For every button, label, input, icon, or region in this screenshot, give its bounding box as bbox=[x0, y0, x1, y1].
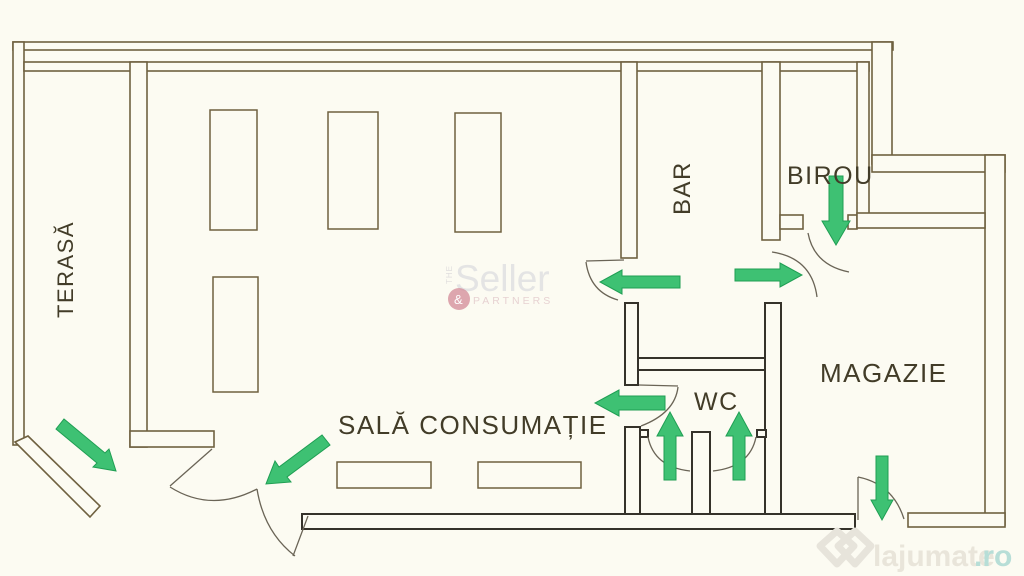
entrance-door-leaf-right bbox=[293, 516, 308, 556]
wc-door-leaf bbox=[639, 385, 678, 386]
arrow-magazie-down bbox=[871, 456, 893, 520]
wall-wc-left-lower bbox=[625, 427, 640, 517]
entrance-door-leaf-left bbox=[170, 449, 212, 486]
seller-name-text: Seller bbox=[455, 258, 550, 299]
label-sala-consumatie: SALĂ CONSUMAȚIE bbox=[338, 410, 608, 440]
arrow-terrace bbox=[56, 419, 116, 471]
arrow-stall-left-up bbox=[657, 412, 683, 480]
lajumate-watermark: lajumate .ro bbox=[820, 531, 1012, 573]
wall-stall-stub-right bbox=[757, 430, 766, 437]
bar-door-leaf bbox=[586, 260, 624, 261]
wall-outer-bottom-right bbox=[908, 513, 1005, 527]
label-magazie: MAGAZIE bbox=[820, 358, 948, 388]
floorplan-scan: TERASĂ BAR BIROU MAGAZIE WC SALĂ CONSUMA… bbox=[0, 0, 1024, 576]
wall-wc-right bbox=[765, 303, 781, 515]
entrance-door-arc-right bbox=[257, 489, 295, 556]
table-rect bbox=[213, 277, 258, 392]
room-walls bbox=[24, 62, 985, 447]
table-rect bbox=[455, 113, 501, 232]
arrow-main-entrance bbox=[266, 435, 330, 484]
wall-outer-left bbox=[13, 42, 24, 445]
wall-hall-left bbox=[130, 62, 147, 447]
table-rect bbox=[478, 462, 581, 488]
label-birou: BIROU bbox=[787, 162, 874, 190]
entrance-door-arc-left bbox=[170, 487, 257, 501]
arrow-bar-door-left bbox=[600, 270, 680, 294]
wall-hall-left-foot bbox=[130, 431, 214, 447]
table-rect bbox=[328, 112, 378, 229]
seller-the-text: THE bbox=[445, 265, 454, 284]
wall-bar-right bbox=[762, 62, 780, 240]
wall-top-inner bbox=[24, 62, 869, 71]
wall-wc-stall-divider bbox=[692, 432, 710, 517]
wall-wc-left-upper bbox=[625, 303, 638, 385]
wall-birou-right bbox=[857, 62, 869, 215]
label-terasa: TERASĂ bbox=[53, 221, 78, 318]
lajumate-logo-icon bbox=[820, 531, 871, 564]
label-wc: WC bbox=[694, 388, 739, 416]
wall-magazie-top bbox=[857, 213, 985, 228]
wall-wc-top bbox=[638, 358, 768, 370]
wall-outer-right bbox=[985, 155, 1005, 525]
arrow-stall-right-up bbox=[726, 412, 752, 480]
wall-birou-bottom-stub bbox=[780, 215, 803, 229]
wall-bar-left bbox=[621, 62, 637, 258]
wall-outer-right-step-vertical bbox=[872, 42, 892, 164]
seller-partners-watermark: THE Seller & PARTNERS bbox=[445, 258, 553, 310]
wall-stall-stub-left bbox=[640, 430, 648, 437]
arrow-corridor-right bbox=[735, 263, 802, 287]
wall-outer-top bbox=[13, 42, 893, 50]
birou-door-arc bbox=[808, 233, 849, 272]
label-bar: BAR bbox=[669, 161, 696, 215]
seller-amp-text: & bbox=[454, 292, 463, 307]
seller-partners-text: PARTNERS bbox=[473, 295, 553, 307]
table-rect bbox=[337, 462, 431, 488]
lajumate-tld-text: .ro bbox=[974, 540, 1012, 573]
wall-bottom bbox=[302, 514, 855, 529]
table-rect bbox=[210, 110, 257, 230]
